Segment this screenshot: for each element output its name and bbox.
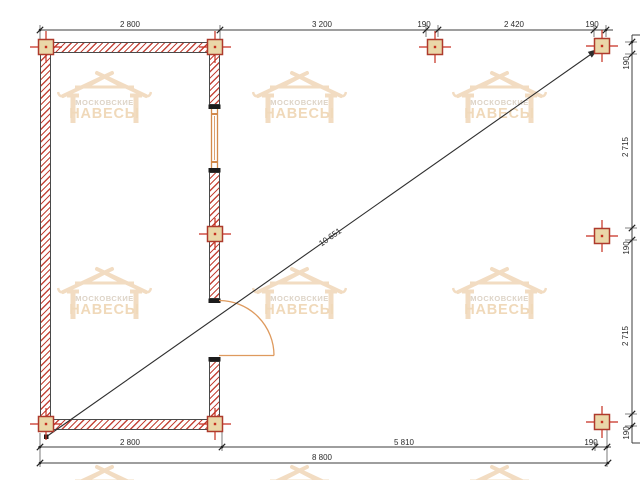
- dim-label-top-1: 3 200: [312, 19, 332, 29]
- extension-lines: [40, 25, 637, 467]
- dim-label-total-width: 8 800: [312, 452, 332, 462]
- dim-label-right-1: 2 715: [620, 137, 630, 157]
- dim-label-right-2: 190: [621, 241, 631, 254]
- dim-label-bottom-0: 2 800: [120, 437, 140, 447]
- dim-label-top-2: 190: [417, 19, 430, 29]
- dim-label-top-3: 2 420: [504, 19, 524, 29]
- floor-plan-canvas: МОСКОВСКИЕНАВЕСЫ МОСКОВСКИЕНАВЕСЫ МОСКОВ…: [0, 0, 640, 480]
- dim-label-bottom-1: 5 810: [394, 437, 414, 447]
- dim-label-right-0: 190: [621, 56, 631, 69]
- dim-label-right-3: 2 715: [620, 326, 630, 346]
- dim-label-right-4: 190: [621, 426, 631, 439]
- dim-label-top-0: 2 800: [120, 19, 140, 29]
- dimension-end-dots: [39, 29, 634, 465]
- dimension-lines: [38, 30, 640, 463]
- dim-label-top-4: 190: [585, 19, 598, 29]
- dim-label-bottom-2: 190: [584, 437, 597, 447]
- window-symbol: [211, 109, 218, 168]
- door-swing: [219, 301, 274, 356]
- dimension-ticks: [37, 27, 635, 466]
